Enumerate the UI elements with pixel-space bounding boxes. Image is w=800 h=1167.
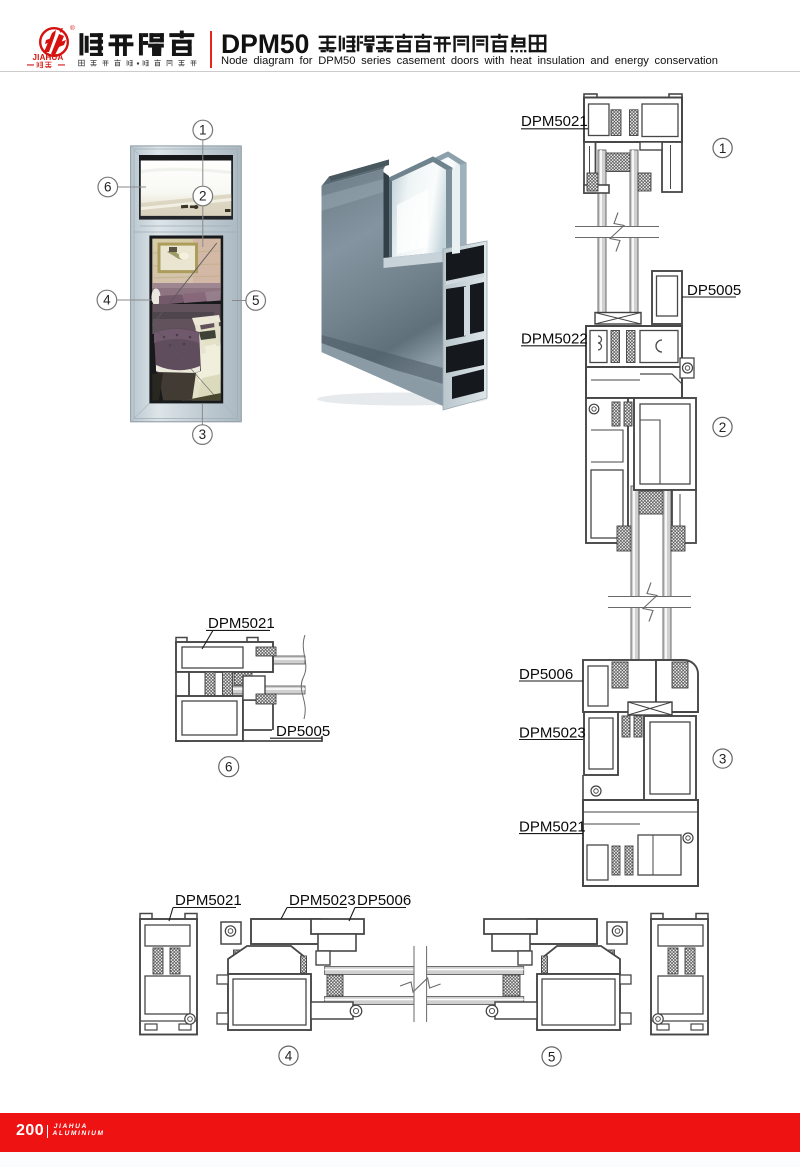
svg-text:2: 2 [199, 189, 207, 204]
svg-text:5: 5 [252, 293, 260, 308]
svg-text:6: 6 [104, 180, 112, 195]
svg-text:DP5005: DP5005 [276, 723, 330, 740]
svg-text:5: 5 [548, 1049, 556, 1064]
svg-text:DPM5022: DPM5022 [521, 331, 588, 348]
svg-text:DPM5021: DPM5021 [519, 819, 586, 836]
svg-text:DPM50: DPM50 [221, 30, 309, 56]
svg-text:6: 6 [225, 760, 233, 775]
svg-text:3: 3 [199, 427, 207, 442]
svg-text:1: 1 [719, 141, 727, 156]
svg-text:4: 4 [285, 1049, 293, 1064]
svg-text:DPM5021: DPM5021 [521, 113, 588, 130]
svg-text:DPM5021: DPM5021 [175, 892, 242, 909]
svg-text:DP5006: DP5006 [357, 892, 411, 909]
svg-text:3: 3 [719, 751, 727, 766]
svg-text:DPM5021: DPM5021 [208, 615, 275, 632]
svg-text:1: 1 [199, 123, 207, 138]
svg-text:®: ® [70, 24, 75, 32]
svg-text:2: 2 [719, 420, 727, 435]
svg-text:4: 4 [103, 293, 111, 308]
svg-text:DPM5023: DPM5023 [289, 892, 356, 909]
